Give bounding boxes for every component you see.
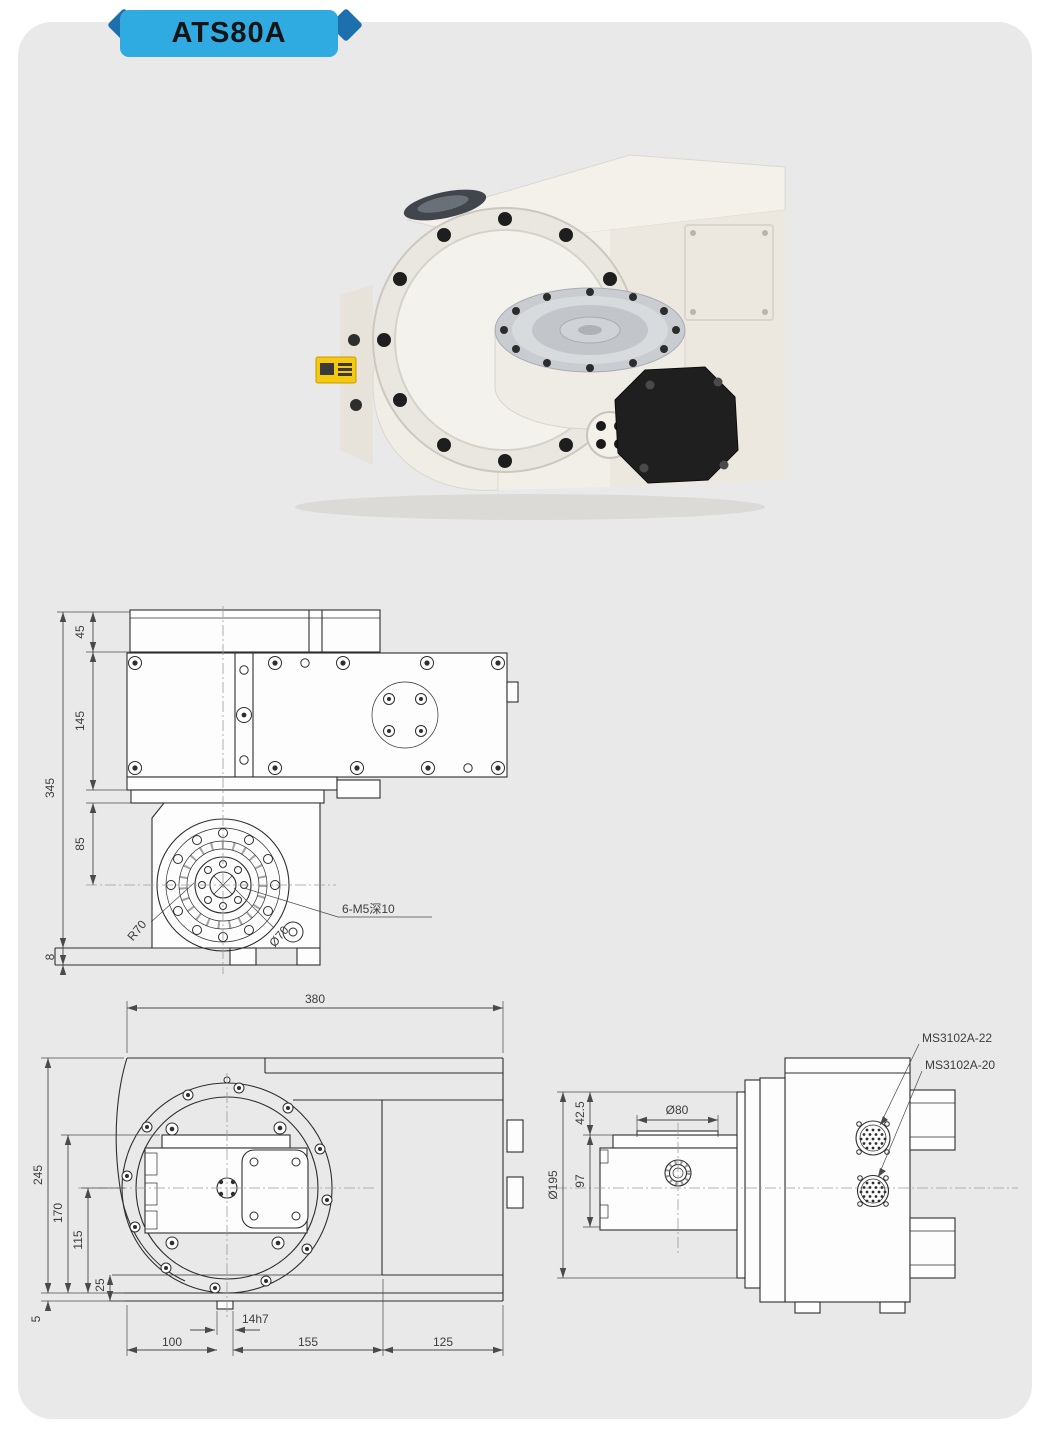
dim-115: 115 xyxy=(71,1230,85,1249)
dim-170: 170 xyxy=(51,1203,65,1223)
dim-345: 345 xyxy=(43,778,57,798)
tilt-circle xyxy=(78,1073,375,1319)
label-connector-lower: MS3102A-20 xyxy=(925,1058,995,1072)
dim-145: 145 xyxy=(73,711,87,731)
part-outline xyxy=(556,1058,1018,1313)
content-panel: ATS80A xyxy=(18,22,1032,1419)
side-view-drawing: Ø195 42.5 97 Ø80 MS3102A-22 MS3102A-20 xyxy=(548,1025,1028,1325)
dim-25: 25 xyxy=(93,1278,107,1292)
model-badge: ATS80A xyxy=(118,10,354,58)
product-photo xyxy=(280,135,800,525)
top-view-drawing: 345 45 145 85 8 R70 Ø70 6-M5深10 xyxy=(36,592,536,1016)
front-view-drawing: 380 245 170 115 25 5 xyxy=(30,985,540,1380)
dim-245: 245 xyxy=(31,1165,45,1185)
dim-5: 5 xyxy=(30,1315,43,1322)
dim-key: 14h7 xyxy=(242,1312,269,1326)
dim-380: 380 xyxy=(305,992,325,1006)
dim-85: 85 xyxy=(73,837,87,851)
model-badge-label: ATS80A xyxy=(120,10,338,57)
dim-dia80: Ø80 xyxy=(666,1103,689,1117)
dim-100: 100 xyxy=(162,1335,182,1349)
dim-8: 8 xyxy=(43,953,57,960)
dim-dia195: Ø195 xyxy=(548,1170,560,1200)
label-r70: R70 xyxy=(124,917,149,943)
dim-155: 155 xyxy=(298,1335,318,1349)
label-connector-upper: MS3102A-22 xyxy=(922,1031,992,1045)
dim-45: 45 xyxy=(73,625,87,639)
part-outline xyxy=(55,610,518,965)
dim-125: 125 xyxy=(433,1335,453,1349)
dim-42-5: 42.5 xyxy=(573,1101,587,1125)
label-thread: 6-M5深10 xyxy=(342,902,395,916)
dim-97: 97 xyxy=(573,1174,587,1188)
